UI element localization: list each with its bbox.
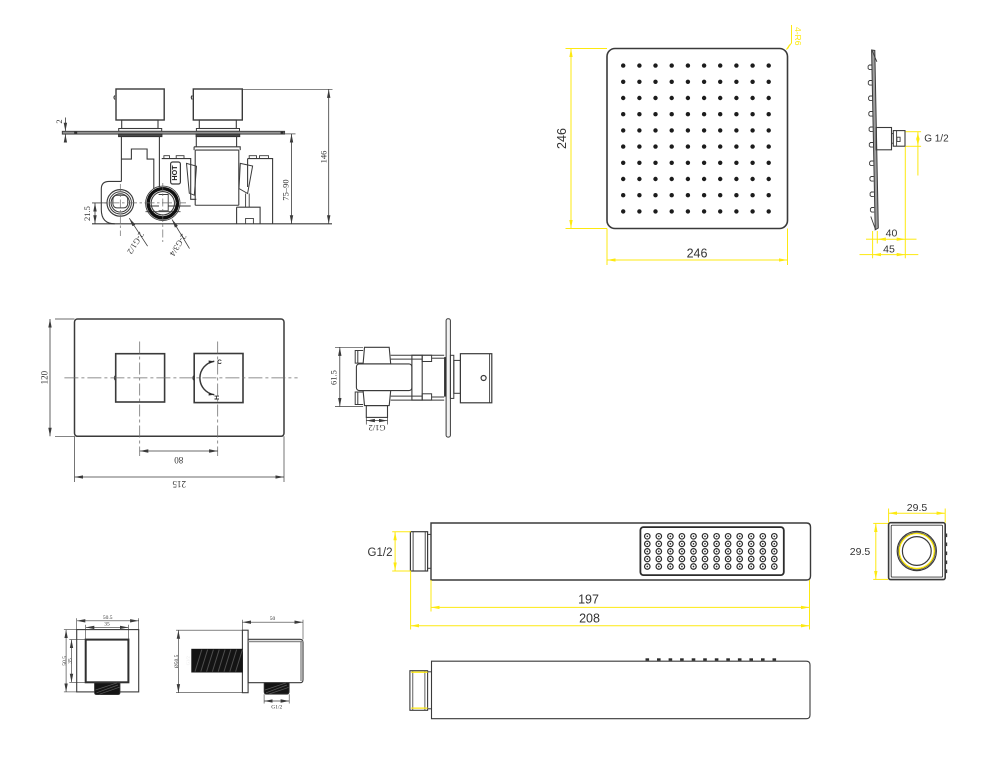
svg-text:G1/2: G1/2	[271, 705, 282, 711]
svg-text:215: 215	[172, 479, 186, 489]
svg-text:Ø50.5: Ø50.5	[174, 654, 180, 668]
svg-text:146: 146	[318, 151, 328, 164]
svg-text:208: 208	[579, 611, 600, 625]
svg-text:197: 197	[578, 593, 599, 607]
svg-text:2: 2	[54, 119, 64, 123]
svg-text:35: 35	[104, 622, 110, 628]
svg-text:120: 120	[40, 370, 50, 384]
svg-text:50.5: 50.5	[103, 615, 113, 621]
svg-text:G1/2: G1/2	[369, 423, 386, 433]
svg-text:G1/2: G1/2	[368, 547, 393, 559]
svg-text:35: 35	[67, 658, 73, 664]
svg-text:G 1/2: G 1/2	[924, 134, 949, 145]
svg-text:HOT: HOT	[170, 165, 179, 181]
svg-text:45: 45	[883, 244, 895, 256]
svg-text:G1/2: G1/2	[185, 656, 190, 665]
svg-text:4-R6: 4-R6	[793, 27, 803, 46]
svg-text:246: 246	[687, 247, 708, 261]
svg-text:75–90: 75–90	[281, 179, 291, 200]
svg-text:80: 80	[174, 455, 184, 465]
svg-text:246: 246	[555, 128, 569, 149]
svg-text:50: 50	[270, 616, 276, 622]
svg-text:29.5: 29.5	[907, 502, 928, 514]
svg-text:40: 40	[886, 228, 898, 240]
svg-text:29.5: 29.5	[850, 546, 871, 558]
svg-text:61.5: 61.5	[329, 370, 339, 385]
svg-text:21.5: 21.5	[82, 206, 92, 221]
